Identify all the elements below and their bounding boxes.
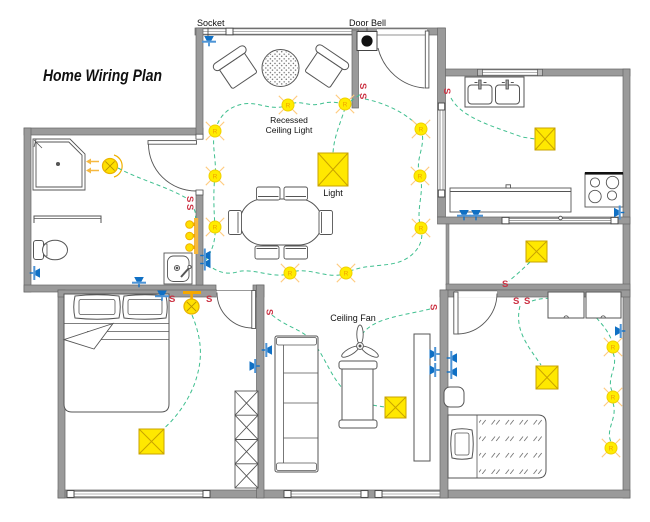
svg-text:S: S bbox=[264, 309, 275, 315]
svg-text:S: S bbox=[524, 296, 530, 307]
svg-text:S: S bbox=[184, 204, 195, 210]
svg-text:Ceiling Fan: Ceiling Fan bbox=[330, 313, 376, 323]
svg-text:Light: Light bbox=[323, 188, 343, 198]
svg-text:S: S bbox=[357, 93, 368, 99]
svg-text:Recessed: Recessed bbox=[270, 115, 308, 125]
svg-text:Home Wiring Plan: Home Wiring Plan bbox=[43, 66, 162, 85]
svg-text:S: S bbox=[357, 83, 368, 89]
svg-text:S: S bbox=[441, 88, 452, 94]
svg-text:Door Bell: Door Bell bbox=[349, 18, 386, 28]
svg-text:Socket: Socket bbox=[197, 18, 225, 28]
svg-text:S: S bbox=[206, 294, 212, 305]
svg-text:S: S bbox=[513, 296, 519, 307]
svg-text:S: S bbox=[502, 279, 508, 290]
svg-text:S: S bbox=[169, 294, 175, 305]
svg-text:S: S bbox=[184, 196, 195, 202]
svg-text:Ceiling Light: Ceiling Light bbox=[266, 125, 313, 135]
